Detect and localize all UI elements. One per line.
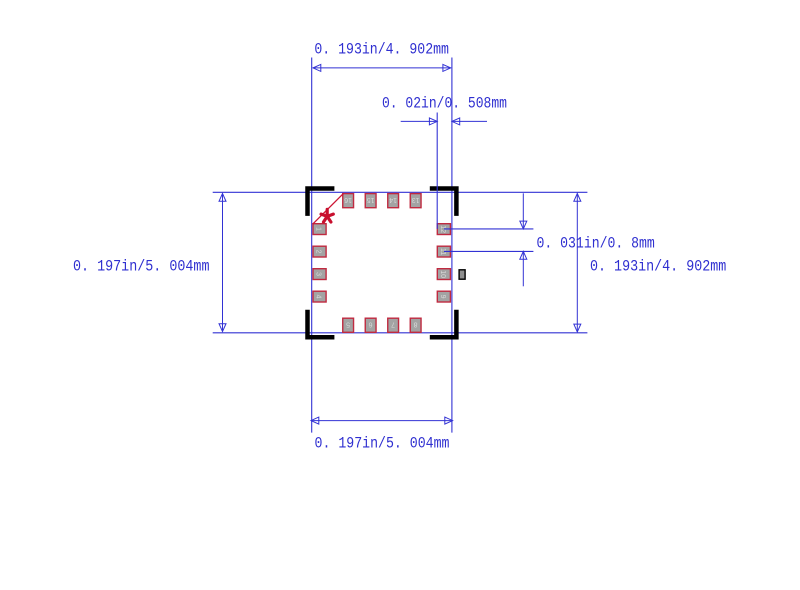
svg-text:4: 4 — [315, 295, 322, 299]
svg-text:2: 2 — [315, 250, 322, 254]
svg-text:0. 197in/5. 004mm: 0. 197in/5. 004mm — [315, 435, 450, 453]
svg-text:0. 193in/4. 902mm: 0. 193in/4. 902mm — [590, 258, 726, 276]
svg-text:0. 02in/0. 508mm: 0. 02in/0. 508mm — [382, 95, 507, 113]
svg-text:9: 9 — [439, 295, 446, 299]
svg-text:13: 13 — [412, 196, 420, 203]
svg-text:15: 15 — [367, 196, 375, 203]
svg-text:1: 1 — [315, 227, 322, 231]
svg-text:10: 10 — [439, 270, 446, 278]
svg-text:0. 197in/5. 004mm: 0. 197in/5. 004mm — [73, 258, 210, 276]
svg-text:8: 8 — [414, 321, 418, 328]
svg-text:14: 14 — [389, 196, 397, 203]
svg-text:0. 031in/0. 8mm: 0. 031in/0. 8mm — [537, 235, 655, 253]
svg-text:3: 3 — [315, 272, 322, 276]
svg-text:16: 16 — [344, 196, 352, 203]
svg-text:5: 5 — [346, 321, 350, 328]
svg-text:6: 6 — [369, 321, 373, 328]
svg-text:7: 7 — [391, 321, 395, 328]
svg-text:0. 193in/4. 902mm: 0. 193in/4. 902mm — [314, 41, 449, 59]
